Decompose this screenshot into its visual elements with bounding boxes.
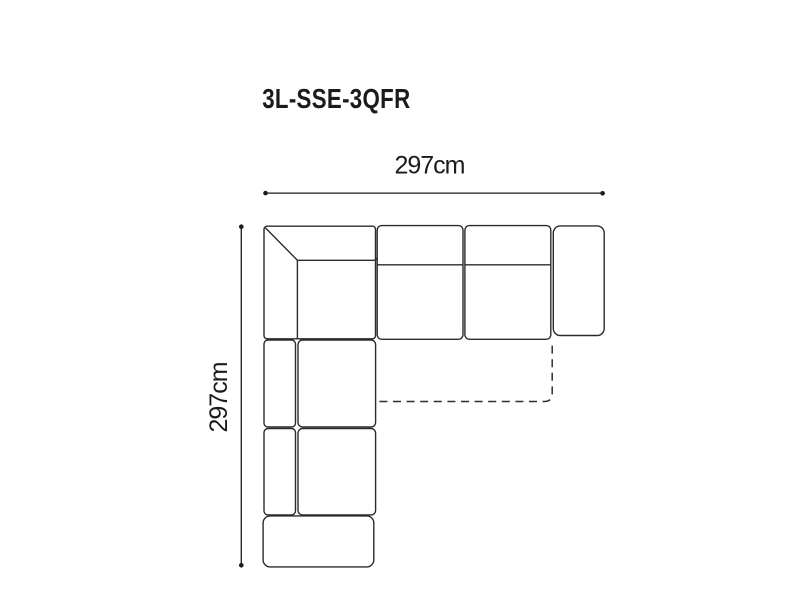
svg-text:297cm: 297cm [394,152,464,180]
svg-text:3L-SSE-3QFR: 3L-SSE-3QFR [262,83,410,114]
svg-text:297cm: 297cm [205,362,233,432]
